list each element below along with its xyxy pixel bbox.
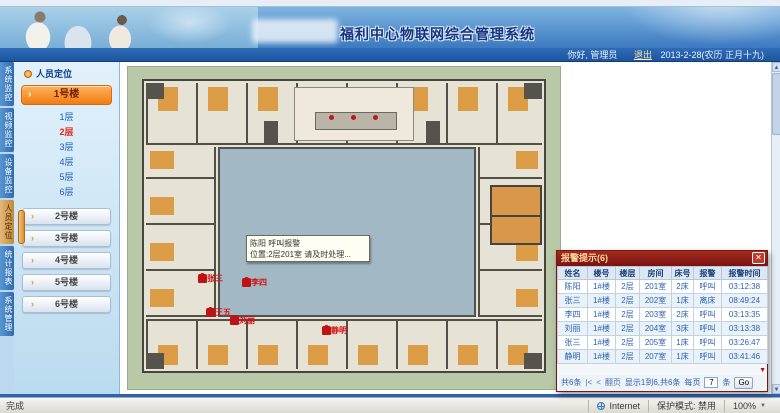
table-cell: 1#楼 — [588, 350, 616, 364]
pager-per-label: 每页 — [684, 377, 700, 388]
person-marker[interactable]: 王五 — [208, 307, 231, 318]
floor-list: 1层2层3层4层5层6层 — [14, 109, 119, 203]
arrow-right-icon: › — [31, 275, 34, 290]
person-marker[interactable]: 静明 — [324, 325, 347, 336]
table-cell: 刘丽 — [558, 322, 588, 336]
table-cell: 呼叫 — [694, 336, 722, 350]
stairwell-block — [146, 83, 164, 99]
zoom-segment[interactable]: 100% ▼ — [724, 400, 774, 412]
table-cell: 03:26:47 — [722, 336, 768, 350]
elevator-block — [264, 121, 278, 143]
table-cell: 1#楼 — [588, 308, 616, 322]
table-cell: 2层 — [616, 280, 640, 294]
zoom-level-label: 100% — [733, 401, 756, 411]
person-marker-icon — [208, 307, 213, 312]
person-icon — [24, 70, 32, 78]
table-cell: 03:13:35 — [722, 308, 768, 322]
table-cell: 1#楼 — [588, 280, 616, 294]
scroll-down-icon[interactable]: ▼ — [759, 367, 766, 374]
table-cell: 2层 — [616, 350, 640, 364]
table-cell: 张三 — [558, 294, 588, 308]
arrow-right-icon: › — [28, 86, 31, 104]
table-cell: 03:41:46 — [722, 350, 768, 364]
table-cell: 静明 — [558, 350, 588, 364]
rooms-left — [146, 147, 216, 317]
page-title: 福利中心物联网综合管理系统 — [340, 24, 535, 44]
arrow-right-icon: › — [31, 231, 34, 246]
building-1-button[interactable]: › 1号楼 — [21, 85, 112, 105]
pager-per-unit: 条 — [722, 377, 730, 388]
table-row[interactable]: 陈阳1#楼2层201室2床呼叫03:12:38 — [558, 280, 768, 294]
person-marker-name: 刘丽 — [239, 315, 255, 326]
elevator-block — [426, 121, 440, 143]
table-cell: 205室 — [640, 336, 672, 350]
user-info-bar: 你好, 管理员 退出 2013-2-28(农历 正月十九) — [0, 48, 780, 62]
table-cell: 204室 — [640, 322, 672, 336]
pager-info: 显示1到6,共6条 — [625, 377, 681, 388]
alarm-column-header: 报警 — [694, 267, 722, 280]
building-button-label: 3号楼 — [55, 233, 78, 243]
table-cell: 呼叫 — [694, 350, 722, 364]
table-cell: 03:13:38 — [722, 322, 768, 336]
person-marker[interactable]: 刘丽 — [232, 315, 255, 326]
building-button-label: 2号楼 — [55, 211, 78, 221]
building-button[interactable]: ›3号楼 — [22, 230, 111, 247]
alarm-tooltip: 陈阳 呼叫报警 位置:2层201室 请及时处理... — [246, 235, 370, 262]
alarm-column-header: 楼号 — [588, 267, 616, 280]
date-text: 2013-2-28(农历 正月十九) — [660, 50, 764, 60]
blurred-region — [252, 19, 338, 43]
logout-link[interactable]: 退出 — [634, 50, 652, 60]
protected-mode-segment: 保护模式: 禁用 — [648, 400, 724, 412]
stairwell-block — [524, 83, 542, 99]
building-button[interactable]: ›4号楼 — [22, 252, 111, 269]
nav-tab[interactable]: 设备监控 — [0, 154, 14, 198]
main-view: 陈阳 呼叫报警 位置:2层201室 请及时处理... 张三李四王五刘丽静明 报警… — [120, 62, 771, 394]
status-bar: 完成 Internet 保护模式: 禁用 100% ▼ — [0, 397, 780, 413]
alarm-column-header: 楼层 — [616, 267, 640, 280]
floor-plan[interactable]: 陈阳 呼叫报警 位置:2层201室 请及时处理... 张三李四王五刘丽静明 — [128, 67, 560, 389]
building-list: ›2号楼›3号楼›4号楼›5号楼›6号楼 — [14, 208, 119, 313]
nav-tab[interactable]: 人员定位 — [0, 200, 14, 244]
table-cell: 201室 — [640, 280, 672, 294]
alarm-popup: 报警提示(6) ✕ 姓名楼号楼层房间床号报警报警时间 陈阳1#楼2层201室2床… — [556, 250, 768, 392]
table-cell: 2层 — [616, 308, 640, 322]
close-icon[interactable]: ✕ — [752, 252, 765, 264]
person-marker-name: 王五 — [215, 307, 231, 318]
table-cell: 1床 — [672, 294, 694, 308]
arrow-right-icon: › — [31, 253, 34, 268]
table-row[interactable]: 张三1#楼2层202室1床离床08:49:24 — [558, 294, 768, 308]
tooltip-line1: 陈阳 呼叫报警 — [250, 238, 366, 249]
table-row[interactable]: 张三1#楼2层205室1床呼叫03:26:47 — [558, 336, 768, 350]
floor-item[interactable]: 5层 — [14, 170, 119, 185]
stairwell-block — [524, 353, 542, 369]
sidebar-collapse-handle[interactable] — [18, 210, 25, 244]
zone-segment: Internet — [588, 400, 648, 412]
table-row[interactable]: 静明1#楼2层207室1床呼叫03:41:46 — [558, 350, 768, 364]
arrow-right-icon: › — [31, 209, 34, 224]
building-1-label: 1号楼 — [54, 89, 80, 100]
globe-icon — [597, 402, 605, 410]
nav-tab[interactable]: 系统监控 — [0, 62, 14, 106]
table-cell: 陈阳 — [558, 280, 588, 294]
person-marker-name: 静明 — [331, 325, 347, 336]
table-cell: 2层 — [616, 336, 640, 350]
floor-item[interactable]: 1层 — [14, 110, 119, 125]
table-cell: 08:49:24 — [722, 294, 768, 308]
table-cell: 1#楼 — [588, 336, 616, 350]
table-cell: 李四 — [558, 308, 588, 322]
nav-tab[interactable]: 统计报表 — [0, 246, 14, 290]
banner-photo — [0, 7, 258, 48]
pager-first-button[interactable]: |< — [585, 378, 592, 387]
courtyard — [218, 147, 476, 317]
alarm-column-header: 房间 — [640, 267, 672, 280]
building-button[interactable]: ›2号楼 — [22, 208, 111, 225]
floor-item[interactable]: 4层 — [14, 155, 119, 170]
page-size-input[interactable] — [704, 377, 718, 388]
alarm-table-head: 姓名楼号楼层房间床号报警报警时间 — [558, 267, 768, 280]
person-marker-icon — [324, 325, 329, 330]
table-cell: 202室 — [640, 294, 672, 308]
greeting-text: 你好, 管理员 — [567, 50, 617, 60]
table-cell: 2层 — [616, 294, 640, 308]
table-row[interactable]: 刘丽1#楼2层204室3床呼叫03:13:38 — [558, 322, 768, 336]
person-marker-name: 张三 — [207, 273, 223, 284]
table-cell: 1床 — [672, 336, 694, 350]
orange-rooms — [490, 185, 542, 245]
table-cell: 1#楼 — [588, 294, 616, 308]
table-cell: 2层 — [616, 322, 640, 336]
panel-title-label: 人员定位 — [36, 67, 72, 80]
table-row[interactable]: 李四1#楼2层203室2床呼叫03:13:35 — [558, 308, 768, 322]
alarm-column-header: 姓名 — [558, 267, 588, 280]
floor-item[interactable]: 6层 — [14, 185, 119, 200]
table-cell: 207室 — [640, 350, 672, 364]
arrow-right-icon: › — [31, 297, 34, 312]
table-cell: 2床 — [672, 308, 694, 322]
table-cell: 离床 — [694, 294, 722, 308]
alarm-column-header: 床号 — [672, 267, 694, 280]
alarm-table: 姓名楼号楼层房间床号报警报警时间 陈阳1#楼2层201室2床呼叫03:12:38… — [557, 266, 768, 364]
scroll-up-icon[interactable]: ▲ — [772, 62, 780, 72]
table-cell: 呼叫 — [694, 280, 722, 294]
table-cell: 1#楼 — [588, 322, 616, 336]
table-cell: 2床 — [672, 280, 694, 294]
person-marker-icon — [200, 273, 205, 278]
protected-mode-label: 保护模式: 禁用 — [657, 399, 716, 412]
building-button-label: 6号楼 — [55, 299, 78, 309]
popup-title: 报警提示(6) — [561, 253, 608, 263]
content-area: 系统监控视频监控设备监控人员定位统计报表系统管理 人员定位 › 1号楼 1层2层… — [0, 62, 780, 394]
nav-tab[interactable]: 视频监控 — [0, 108, 14, 152]
person-marker-name: 李四 — [251, 277, 267, 288]
sidebar-panel: 人员定位 › 1号楼 1层2层3层4层5层6层 ›2号楼›3号楼›4号楼›5号楼… — [14, 62, 120, 394]
app-window: 福利中心物联网综合管理系统 你好, 管理员 退出 2013-2-28(农历 正月… — [0, 0, 780, 413]
scroll-down-icon[interactable]: ▼ — [772, 384, 780, 394]
person-marker-icon — [244, 277, 249, 282]
building-button[interactable]: ›6号楼 — [22, 296, 111, 313]
pager-count: 共6条 — [561, 377, 581, 388]
table-cell: 张三 — [558, 336, 588, 350]
alarm-column-header: 报警时间 — [722, 267, 768, 280]
vertical-scrollbar[interactable]: ▲ ▼ — [771, 62, 780, 394]
chevron-down-icon: ▼ — [760, 403, 766, 409]
nav-tab[interactable]: 系统管理 — [0, 292, 14, 336]
pager-go-button[interactable]: Go — [734, 377, 753, 389]
person-marker-icon — [232, 315, 237, 320]
scrollbar-thumb[interactable] — [772, 73, 780, 135]
table-cell: 1床 — [672, 350, 694, 364]
table-cell: 呼叫 — [694, 308, 722, 322]
header-banner: 福利中心物联网综合管理系统 — [0, 7, 780, 48]
floor-item[interactable]: 3层 — [14, 140, 119, 155]
person-marker[interactable]: 李四 — [244, 277, 267, 288]
tooltip-line2: 位置:2层201室 请及时处理... — [250, 249, 366, 260]
stairwell-block — [146, 353, 164, 369]
pager-prev-button[interactable]: < — [596, 378, 601, 387]
pager-bar: 共6条 |< < 翻页 显示1到6,共6条 每页 条 Go — [559, 375, 765, 390]
building-button-label: 5号楼 — [55, 277, 78, 287]
building-button-label: 4号楼 — [55, 255, 78, 265]
table-cell: 03:12:38 — [722, 280, 768, 294]
floor-item[interactable]: 2层 — [14, 125, 119, 140]
window-top-edge — [0, 0, 780, 7]
table-cell: 呼叫 — [694, 322, 722, 336]
vertical-tab-strip: 系统监控视频监控设备监控人员定位统计报表系统管理 — [0, 62, 14, 394]
table-cell: 203室 — [640, 308, 672, 322]
meeting-hall — [294, 87, 414, 141]
person-marker[interactable]: 张三 — [200, 273, 223, 284]
table-cell: 3床 — [672, 322, 694, 336]
status-left-text: 完成 — [6, 399, 588, 412]
building-button[interactable]: ›5号楼 — [22, 274, 111, 291]
panel-title: 人员定位 — [14, 62, 119, 83]
pager-page-button[interactable]: 翻页 — [605, 377, 621, 388]
popup-titlebar[interactable]: 报警提示(6) ✕ — [557, 251, 767, 266]
zone-label: Internet — [609, 401, 640, 411]
